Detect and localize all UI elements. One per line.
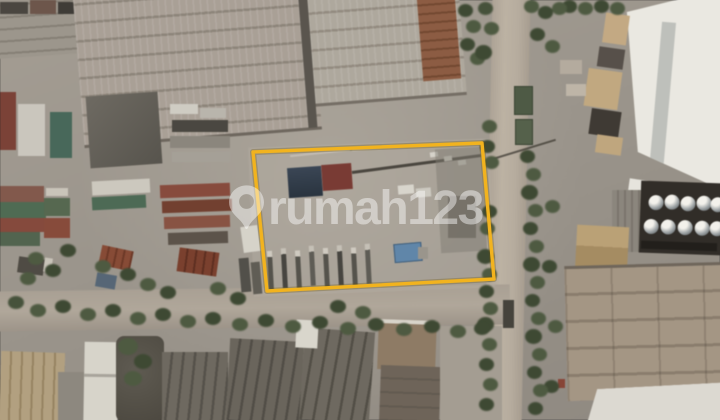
storage-tanks-east: [639, 181, 720, 256]
truck-on-road: [503, 300, 514, 328]
green-truck: [515, 119, 533, 145]
storage-tank: [648, 195, 664, 211]
tree-line-east: [478, 2, 493, 15]
storage-tank: [710, 197, 720, 213]
container: [200, 108, 226, 118]
pipe-rack: [641, 241, 717, 252]
small-structure: [560, 60, 582, 74]
truck-cab: [418, 247, 428, 259]
dark-shed-roof: [86, 92, 163, 169]
roof-line: [84, 374, 118, 378]
white-building-south: [83, 342, 118, 420]
container: [170, 104, 198, 114]
trailer: [337, 245, 344, 285]
white-hut: [295, 319, 318, 348]
storage-tank: [680, 196, 696, 212]
dark-gabled-roof: [226, 338, 304, 420]
storage-tank: [709, 221, 720, 237]
storage-tank: [696, 196, 712, 212]
satellite-photo: rumah123: [0, 0, 720, 420]
trailer: [351, 247, 358, 287]
trailer: [281, 248, 288, 288]
dark-yard-south: [116, 336, 164, 420]
truck: [17, 256, 45, 275]
small-structure: [566, 84, 586, 96]
trailer: [295, 250, 302, 290]
dark-gabled-roof: [162, 352, 228, 420]
tan-building: [584, 68, 623, 110]
green-truck: [514, 86, 533, 115]
brown-roof: [377, 319, 437, 371]
trailer: [323, 248, 330, 288]
container-row: [164, 215, 230, 229]
container-stack: [0, 92, 16, 150]
trailer-row-on-plot: [267, 241, 386, 299]
rust-roof-section: [417, 0, 461, 81]
tan-building: [602, 12, 630, 45]
container-row: [168, 231, 228, 245]
container: [46, 188, 68, 196]
watermark-text: rumah123: [268, 187, 483, 231]
tan-building: [595, 134, 623, 155]
trailer: [365, 244, 372, 284]
container-row: [0, 186, 44, 202]
container-row: [160, 183, 230, 198]
storage-tank: [694, 220, 710, 236]
container-stack: [18, 104, 45, 156]
storage-tank: [677, 220, 693, 236]
map-pin-icon: [228, 184, 265, 232]
container-row: [0, 218, 44, 232]
container-row: [0, 202, 46, 218]
red-vehicle: [558, 379, 565, 388]
dark-structure: [588, 108, 621, 138]
tree-line-south: [8, 296, 24, 309]
brown-gray-roof: [379, 365, 441, 420]
container-stack: [50, 112, 72, 158]
container: [172, 120, 228, 132]
storage-tank: [660, 219, 676, 235]
trailer: [309, 246, 316, 286]
truck: [0, 2, 28, 14]
container-row: [44, 218, 70, 238]
light-ground-south: [440, 326, 502, 420]
container-row: [0, 232, 40, 246]
tan-gabled-roof-south: [0, 351, 65, 420]
trailer: [267, 251, 274, 291]
container-row: [44, 198, 70, 216]
dark-structure: [597, 46, 626, 69]
container-row: [162, 199, 232, 213]
container: [170, 136, 230, 148]
storage-tank: [643, 219, 659, 235]
container: [172, 152, 230, 162]
truck: [30, 0, 56, 14]
storage-tank: [664, 194, 680, 210]
warehouse-southeast: [564, 262, 720, 401]
watermark: rumah123: [228, 184, 483, 232]
